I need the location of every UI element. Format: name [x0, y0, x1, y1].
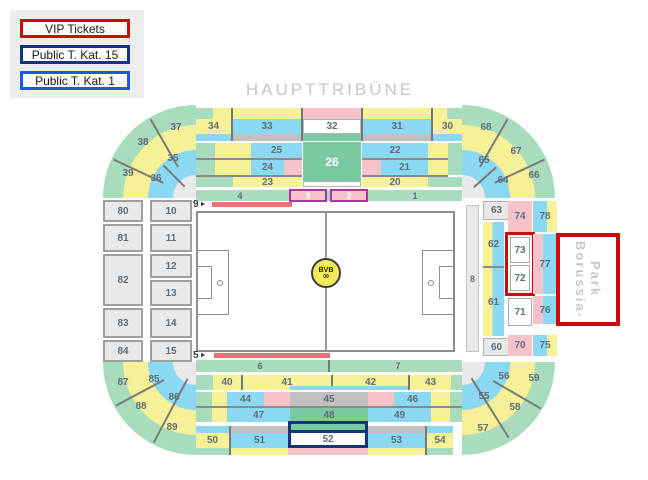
section-9-bar	[212, 202, 292, 207]
seat-strip	[447, 108, 462, 119]
section-74[interactable]: 74	[508, 201, 532, 232]
seat-strip	[431, 392, 450, 406]
section-73[interactable]: 73	[510, 237, 530, 263]
section-80[interactable]: 80	[103, 200, 143, 222]
divider	[362, 175, 448, 177]
section-38[interactable]: 38	[133, 136, 153, 148]
legend-item-vip[interactable]: VIP Tickets	[20, 19, 130, 38]
section-52[interactable]: 52	[291, 430, 365, 445]
goal-area-right	[439, 266, 453, 299]
section-14[interactable]: 14	[150, 308, 192, 338]
divider	[301, 108, 303, 141]
venue-label: Borussia- Park	[573, 241, 603, 319]
page-title: HAUPTTRIBÜNE	[214, 80, 446, 100]
divider	[231, 108, 233, 141]
seat-strip	[231, 426, 288, 433]
seat-strip	[212, 392, 227, 406]
section-23[interactable]: 23	[233, 177, 302, 187]
seat-strip	[196, 108, 213, 119]
divider	[328, 360, 330, 372]
section-81[interactable]: 81	[103, 224, 143, 252]
club-logo-abbr: BVB	[319, 267, 334, 274]
section-75[interactable]: 75	[533, 335, 557, 356]
seat-strip	[368, 426, 425, 433]
section-2[interactable]: 2	[330, 189, 368, 202]
section-3[interactable]: 3	[289, 189, 327, 202]
seat-strip	[284, 160, 302, 175]
section-84[interactable]: 84	[103, 340, 143, 362]
divider	[431, 108, 433, 141]
section-61[interactable]: 61	[483, 268, 504, 336]
seat-strip	[303, 108, 361, 119]
divider	[362, 158, 448, 160]
section-83[interactable]: 83	[103, 308, 143, 338]
seat-strip	[233, 108, 301, 119]
legend-item-kat1[interactable]: Public T. Kat. 1	[20, 71, 130, 90]
section-68[interactable]: 68	[476, 121, 496, 133]
seat-strip	[368, 448, 425, 455]
section-59[interactable]: 59	[524, 372, 544, 384]
venue-label-line1: Borussia-	[573, 241, 588, 319]
venue-label-line2: Park	[588, 241, 603, 319]
seat-strip	[196, 134, 231, 141]
seat-strip	[433, 108, 447, 119]
seat-strip	[196, 375, 213, 390]
section-78[interactable]: 78	[533, 201, 557, 232]
section-52-highlight[interactable]: 52	[288, 421, 368, 448]
divider	[361, 108, 363, 141]
penalty-spot-right	[428, 280, 434, 286]
section-56[interactable]: 56	[494, 370, 514, 382]
section-9-label: 9	[193, 199, 199, 210]
section-63[interactable]: 63	[483, 201, 510, 220]
seat-strip	[290, 386, 408, 390]
seat-strip	[233, 134, 301, 141]
section-39[interactable]: 39	[118, 167, 138, 179]
divider	[408, 375, 410, 390]
section-20[interactable]: 20	[362, 177, 428, 187]
section-9-marker[interactable]: 9►	[193, 199, 207, 209]
section-67[interactable]: 67	[506, 145, 526, 157]
section-11[interactable]: 11	[150, 224, 192, 252]
section-49[interactable]: 49	[368, 408, 431, 422]
section-87[interactable]: 87	[113, 376, 133, 388]
stadium-seatmap: VIP Tickets Public T. Kat. 15 Public T. …	[0, 0, 648, 480]
section-50[interactable]: 50	[196, 433, 229, 448]
seat-strip	[212, 408, 227, 422]
seat-strip	[196, 426, 229, 433]
section-31[interactable]: 31	[363, 119, 431, 134]
seat-strip	[264, 392, 290, 406]
club-logo: BVB 09	[311, 258, 341, 288]
penalty-spot-left	[217, 280, 223, 286]
section-70[interactable]: 70	[508, 335, 532, 356]
section-54[interactable]: 54	[427, 433, 453, 448]
section-6[interactable]: 6	[250, 360, 270, 372]
club-logo-year: 09	[323, 274, 329, 280]
seat-strip	[215, 160, 251, 175]
seat-strip	[448, 143, 462, 175]
divider	[196, 158, 302, 160]
section-44[interactable]: 44	[227, 392, 264, 406]
divider	[196, 175, 302, 177]
section-5-marker[interactable]: 5►	[193, 350, 207, 360]
section-35[interactable]: 35	[163, 152, 183, 164]
seat-strip	[363, 134, 431, 141]
legend-item-kat15[interactable]: Public T. Kat. 15	[20, 45, 130, 64]
seat-strip	[433, 134, 462, 141]
section-66[interactable]: 66	[524, 169, 544, 181]
section-65[interactable]: 65	[474, 154, 494, 166]
section-30[interactable]: 30	[433, 119, 462, 134]
divider	[425, 426, 427, 455]
section-24[interactable]: 24	[251, 160, 284, 175]
divider	[229, 426, 231, 455]
seat-strip	[362, 160, 381, 175]
section-12[interactable]: 12	[150, 254, 192, 278]
section-88[interactable]: 88	[131, 400, 151, 412]
seat-strip	[231, 448, 288, 455]
section-53[interactable]: 53	[368, 433, 425, 448]
section-45[interactable]: 45	[290, 392, 368, 406]
section-77[interactable]: 77	[533, 234, 557, 294]
section-22[interactable]: 22	[362, 143, 428, 158]
seat-strip	[428, 160, 448, 175]
section-48[interactable]: 48	[290, 408, 368, 422]
section-34[interactable]: 34	[196, 119, 231, 134]
section-72[interactable]: 72	[510, 265, 530, 291]
pitch: BVB 09	[196, 211, 455, 352]
seat-strip	[196, 448, 229, 455]
section-62[interactable]: 62	[483, 222, 504, 266]
section-7[interactable]: 7	[388, 360, 408, 372]
section-89[interactable]: 89	[162, 421, 182, 433]
seat-strip	[428, 177, 448, 187]
seat-strip	[303, 134, 361, 141]
seat-strip	[448, 177, 462, 187]
vip-box-72-73[interactable]: 73 72	[505, 232, 535, 296]
section-57[interactable]: 57	[473, 422, 493, 434]
section-51[interactable]: 51	[231, 433, 288, 448]
section-1[interactable]: 1	[405, 190, 425, 201]
section-85[interactable]: 85	[144, 373, 164, 385]
section-26[interactable]: 26	[303, 142, 361, 181]
section-10[interactable]: 10	[150, 200, 192, 222]
section-43[interactable]: 43	[410, 375, 451, 390]
seat-strip	[428, 143, 448, 158]
seat-strip	[427, 426, 453, 433]
seat-strip	[213, 108, 231, 119]
section-37[interactable]: 37	[166, 121, 186, 133]
section-25[interactable]: 25	[251, 143, 302, 158]
section-15[interactable]: 15	[150, 340, 192, 362]
arrow-right-icon: ►	[200, 352, 207, 359]
section-8[interactable]: 8	[466, 205, 479, 352]
section-76[interactable]: 76	[533, 296, 557, 324]
section-32[interactable]: 32	[303, 119, 361, 134]
section-47[interactable]: 47	[227, 408, 290, 422]
seat-strip	[427, 448, 453, 455]
venue-label-box: Borussia- Park	[556, 233, 620, 326]
seat-strip	[288, 448, 368, 455]
divider	[241, 375, 243, 390]
section-4[interactable]: 4	[230, 190, 250, 201]
goal-area-left	[198, 266, 212, 299]
seat-strip	[303, 181, 361, 187]
seat-strip	[215, 143, 251, 158]
section-5-label: 5	[193, 350, 199, 361]
section-82[interactable]: 82	[103, 254, 143, 306]
section-64[interactable]: 64	[493, 174, 513, 186]
section-36[interactable]: 36	[146, 172, 166, 184]
section-55[interactable]: 55	[474, 390, 494, 402]
seat-strip	[215, 177, 233, 187]
section-58[interactable]: 58	[505, 401, 525, 413]
section-60[interactable]: 60	[483, 338, 510, 356]
section-71[interactable]: 71	[508, 298, 532, 326]
section-33[interactable]: 33	[233, 119, 301, 134]
seat-strip	[363, 108, 431, 119]
section-13[interactable]: 13	[150, 280, 192, 306]
section-46[interactable]: 46	[394, 392, 431, 406]
seat-strip	[196, 392, 212, 406]
section-21[interactable]: 21	[381, 160, 428, 175]
section-5-bar	[214, 353, 330, 358]
seat-strip	[196, 177, 215, 187]
section-86[interactable]: 86	[164, 391, 184, 403]
seat-strip	[196, 408, 212, 422]
section-40[interactable]: 40	[213, 375, 241, 390]
seat-strip	[431, 408, 450, 422]
arrow-right-icon: ►	[200, 201, 207, 208]
seat-strip	[368, 392, 394, 406]
